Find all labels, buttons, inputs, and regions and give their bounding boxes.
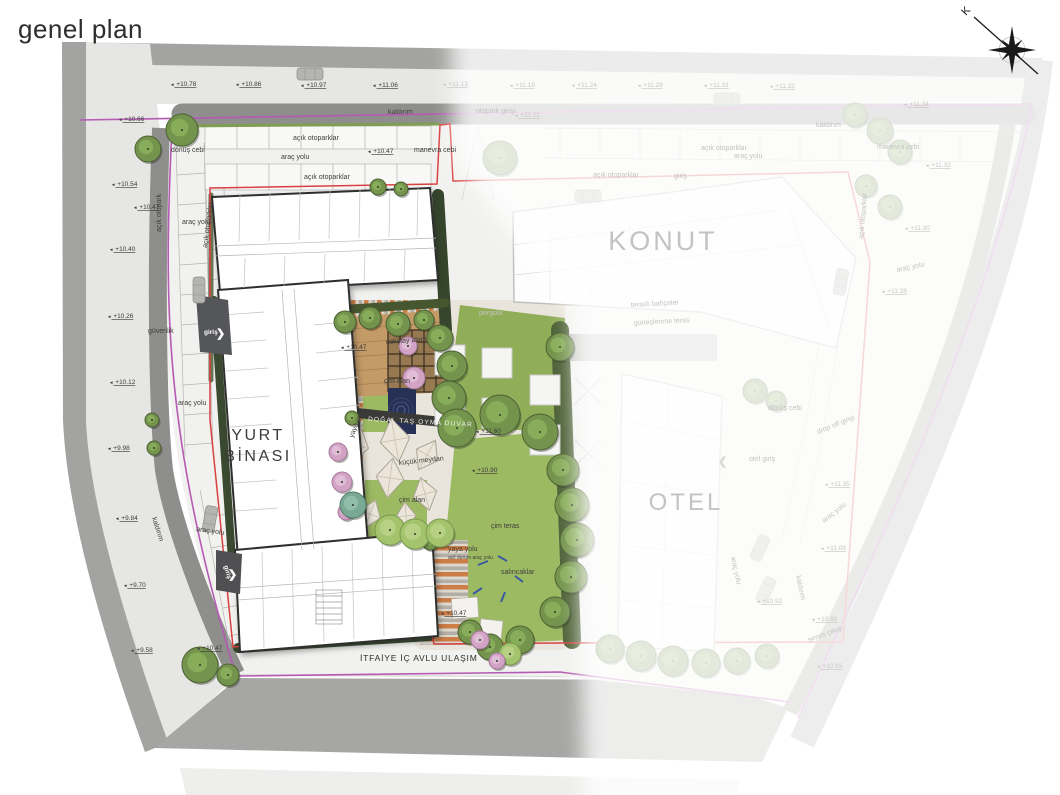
plan-label: açık otoparklar [293,135,340,142]
elevation-marker: ◄ +10.86 [235,81,262,88]
elevation-marker: ◄ +11.24 [571,82,597,89]
plan-label: açık otoparklar [304,174,351,181]
elevation-marker: ◄ +10.47 [340,344,367,351]
plan-label: otel giriş [749,456,776,463]
elevation-marker: ◄ +10.93 [816,663,843,670]
plan-label: dönüş cebi [768,405,802,412]
car-icon [297,68,323,80]
elevation-marker: ◄ +10.97 [300,82,327,89]
page-title: genel plan [18,14,143,45]
plan-label: salıncaklar [501,569,535,576]
plan-label: manevra cebi [877,144,919,151]
plan-label: açık otopark [156,193,163,232]
building-label-yurt: BİNASI [224,446,291,465]
plan-label: açık otoparklar [701,145,748,152]
plan-label: yaya yolu [448,546,478,553]
site-plan-page: kaldırımaçık otoparklarmanevra cebiaraç … [0,0,1060,795]
elevation-marker: ◄ +10.40 [109,246,136,253]
plan-label: çim alan [384,378,410,385]
elevation-marker: ◄ +9.84 [115,515,138,522]
plan-label: çim teras [491,523,520,530]
plan-label: İTFAİYE İÇ AVLU ULAŞIM [360,653,478,663]
building-label-konut: KONUT [608,226,718,256]
elevation-marker: ◄ +11.30 [904,225,930,232]
elevation-marker: ◄ +11.22 [514,112,540,119]
elevation-marker: ◄ +11.32 [925,162,951,169]
elevation-marker: ◄ +10.47 [133,204,160,211]
building-label-yurt: YURT [231,427,284,444]
elevation-marker: ◄ +10.47 [440,610,467,617]
elevation-marker: ◄ +10.90 [471,467,498,474]
elevation-marker: ◄ +11.28 [881,288,907,295]
entrance-arrow-icon: ❯ [228,569,237,581]
elevation-marker: ◄ +11.13 [442,81,468,88]
elevation-marker: ◄ +9.58 [130,647,153,654]
site-plan-drawing: kaldırımaçık otoparklarmanevra cebiaraç … [0,0,1060,795]
elevation-marker: ◄ +10.91 [811,616,838,623]
elevation-marker: ◄ +11.19 [509,82,535,89]
elevation-marker: ◄ +10.66 [118,116,145,123]
plan-label: güvenlik [148,328,174,335]
elevation-marker: ◄ +10.78 [170,81,197,88]
elevation-marker: ◄ +10.26 [107,313,134,320]
elevation-marker: ◄ +11.06 [372,82,398,89]
plan-label: çim alan [399,497,425,504]
plan-label: kaldırım [388,109,413,116]
plan-label: dönüş cebi [171,147,205,154]
elevation-marker: ◄ +9.98 [107,445,130,452]
building-label-otel: OTEL [649,489,724,516]
plan-label: araç yolu [281,154,310,161]
plan-label: pergola [479,310,502,317]
elevation-marker: ◄ +11.31 [703,82,729,89]
green-edge-strip [180,124,440,126]
elevation-marker: ◄ +11.60 [475,428,501,435]
elevation-marker: ◄ +11.08 [820,545,846,552]
entrance-arrow-icon: ❮ [718,456,727,468]
plan-label: acil durum araç yolu [448,555,493,561]
plan-label: açık otoparklar [593,172,640,179]
elevation-marker: ◄ +10.92 [756,598,783,605]
car-icon [193,277,205,303]
entrance-arrow-icon: ❯ [216,328,225,340]
elevation-marker: ◄ +10.54 [111,181,138,188]
elevation-marker: ◄ +11.32 [769,83,795,90]
elevation-marker: ◄ +10.12 [109,379,136,386]
elevation-marker: ◄ +10.47 [196,645,223,652]
elevation-marker: ◄ +10.47 [367,148,394,155]
elevation-marker: ◄ +11.34 [903,101,929,108]
elevation-marker: ◄ +11.28 [637,82,663,89]
plan-label: manevra cebi [414,147,456,154]
elevation-marker: ◄ +11.35 [824,481,850,488]
plan-label: giriş [674,173,687,180]
elevation-marker: ◄ +9.70 [123,582,146,589]
plan-label: araç yolu [734,153,763,160]
plan-label: kaldırım [816,122,841,129]
plan-label: araç yolu [178,400,207,407]
plan-label: otopark girişi [476,108,516,115]
